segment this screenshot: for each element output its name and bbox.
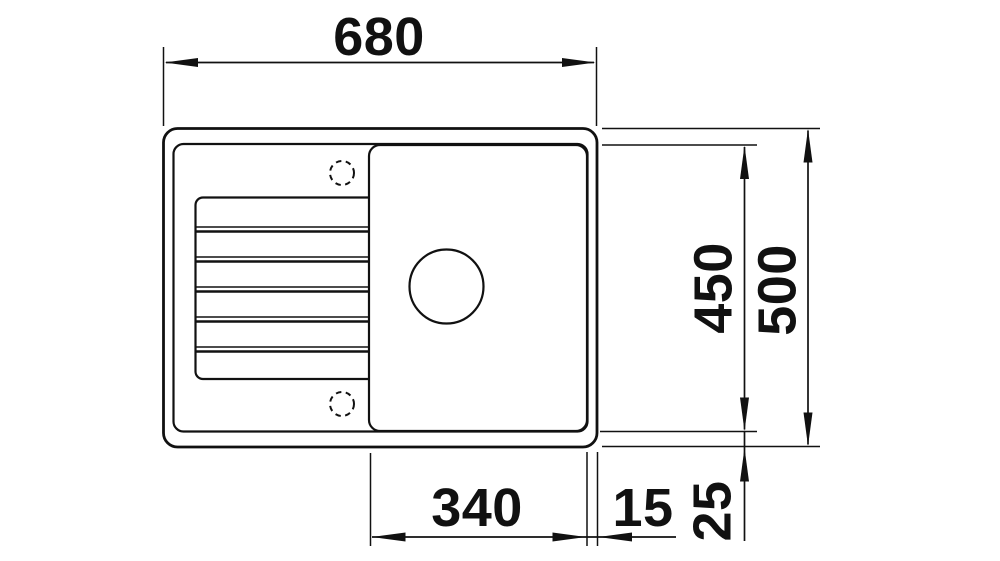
dim-basin-field-depth: 450 — [600, 145, 757, 432]
arrowhead-down — [740, 398, 749, 432]
drainboard-grooves — [196, 227, 369, 352]
dim-bowl-width-and-edge-gap: 340 15 — [371, 452, 677, 546]
dim-label-bowl-width: 340 — [431, 478, 523, 538]
tap-hole-top — [330, 161, 354, 185]
arrowhead-right — [553, 533, 587, 542]
dim-label-overall-depth: 500 — [748, 244, 808, 336]
sink-plan-view — [164, 129, 598, 448]
arrowhead-up — [804, 129, 813, 163]
dim-label-overall-width: 680 — [333, 7, 425, 67]
sink-bowl — [369, 145, 587, 431]
tap-hole-bottom — [330, 392, 354, 416]
arrowhead-right — [562, 58, 596, 67]
dim-overall-width: 680 — [164, 7, 597, 126]
dim-label-bowl-bottom-gap: 25 — [683, 480, 743, 541]
dim-label-basin-field-depth: 450 — [684, 242, 744, 334]
arrowhead-up — [740, 146, 749, 180]
sink-drawing-svg: 680 450 500 340 — [0, 0, 1000, 561]
sink-technical-drawing: 680 450 500 340 — [0, 0, 1000, 561]
arrowhead-left — [372, 533, 406, 542]
dim-bowl-bottom-gap: 25 — [683, 432, 750, 542]
arrowhead-down — [804, 413, 813, 447]
arrowhead-left — [165, 58, 199, 67]
dim-label-bowl-edge-gap: 15 — [612, 478, 673, 538]
drain-hole — [410, 250, 484, 324]
arrowhead-up — [740, 448, 749, 482]
